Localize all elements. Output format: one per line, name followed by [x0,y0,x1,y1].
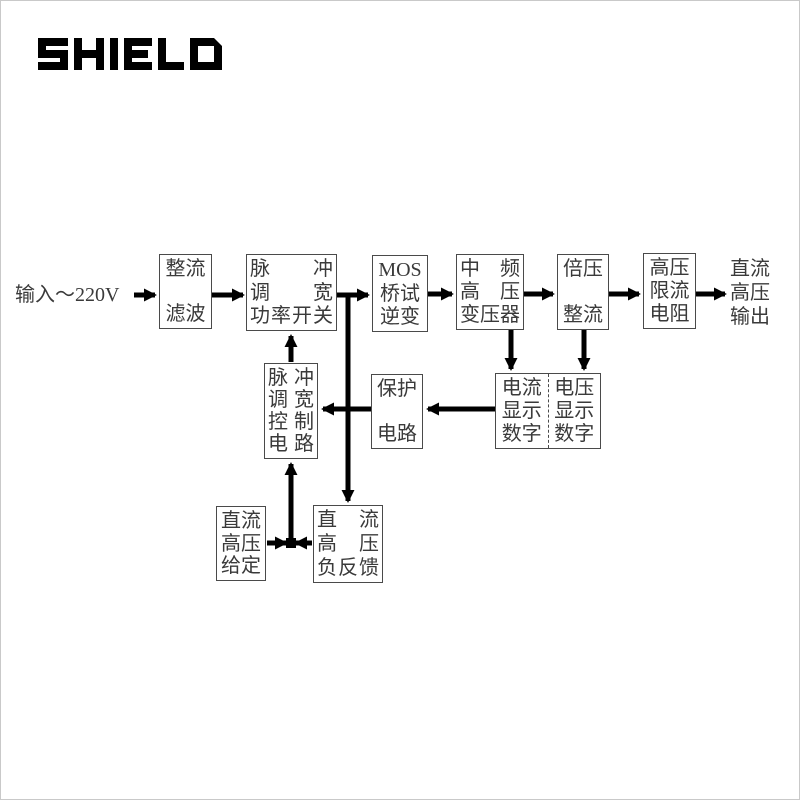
block-line: 显示 [498,401,546,421]
block-mos-bridge-inverter: MOS 桥试 逆变 [372,255,428,332]
block-line: 高压 [317,534,379,554]
block-line: 直流 [317,510,379,530]
page: 输入～220V 直流 高压 输出 整流 滤波 脉冲 调宽 功率开关 MOS 桥试… [0,0,800,800]
block-line: 调宽 [250,283,333,303]
block-line: 高压 [647,258,692,278]
voltage-display-cell: 电压 显示 数字 [548,374,601,448]
block-rectifier-filter: 整流 滤波 [159,254,212,329]
shield-logo [38,35,233,73]
block-line: 脉冲 [268,368,314,388]
block-dc-hv-setting: 直流 高压 给定 [216,506,266,581]
block-line: 整流 [163,259,208,279]
block-line: 电路 [375,424,419,444]
current-display-cell: 电流 显示 数字 [496,374,548,448]
block-line: 数字 [498,424,546,444]
block-line: 滤波 [163,304,208,324]
block-line: 保护 [375,379,419,399]
block-protection-circuit: 保护 电路 [371,374,423,449]
output-label: 直流 高压 输出 [730,257,788,329]
junction-dot [286,538,296,548]
block-hv-current-limit-resistor: 高压 限流 电阻 [643,253,696,329]
block-line: 逆变 [376,307,424,327]
block-line: 高压 [220,534,262,554]
block-pwm-control-circuit: 脉冲 调宽 控制 电路 [264,363,318,459]
block-mf-hv-transformer: 中频 高压 变压器 [456,254,524,330]
block-line: MOS [376,260,424,280]
block-line: 电压 [551,378,599,398]
block-line: 数字 [551,424,599,444]
output-label-line: 直流 [730,257,788,281]
block-voltage-doubler-rectifier: 倍压 整流 [557,254,609,330]
block-line: 电阻 [647,304,692,324]
block-line: 调宽 [268,390,314,410]
block-line: 桥试 [376,284,424,304]
shield-logo-glyphs [38,35,233,73]
block-line: 变压器 [460,305,520,325]
block-line: 直流 [220,511,262,531]
block-line: 整流 [561,305,605,325]
block-line: 高压 [460,282,520,302]
block-dc-hv-negative-feedback: 直流 高压 负反馈 [313,505,383,583]
block-line: 倍压 [561,259,605,279]
block-line: 负反馈 [317,558,379,578]
block-line: 控制 [268,412,314,432]
block-line: 功率开关 [250,306,333,326]
block-line: 显示 [551,401,599,421]
block-line: 电流 [498,378,546,398]
block-line: 电路 [268,434,314,454]
block-display-digits: 电流 显示 数字 电压 显示 数字 [495,373,601,449]
block-line: 给定 [220,556,262,576]
block-pwm-power-switch: 脉冲 调宽 功率开关 [246,254,337,331]
block-line: 脉冲 [250,259,333,279]
output-label-line: 高压 [730,281,788,305]
output-label-line: 输出 [730,305,788,329]
input-label: 输入～220V [15,285,119,305]
block-line: 限流 [647,281,692,301]
block-line: 中频 [460,259,520,279]
